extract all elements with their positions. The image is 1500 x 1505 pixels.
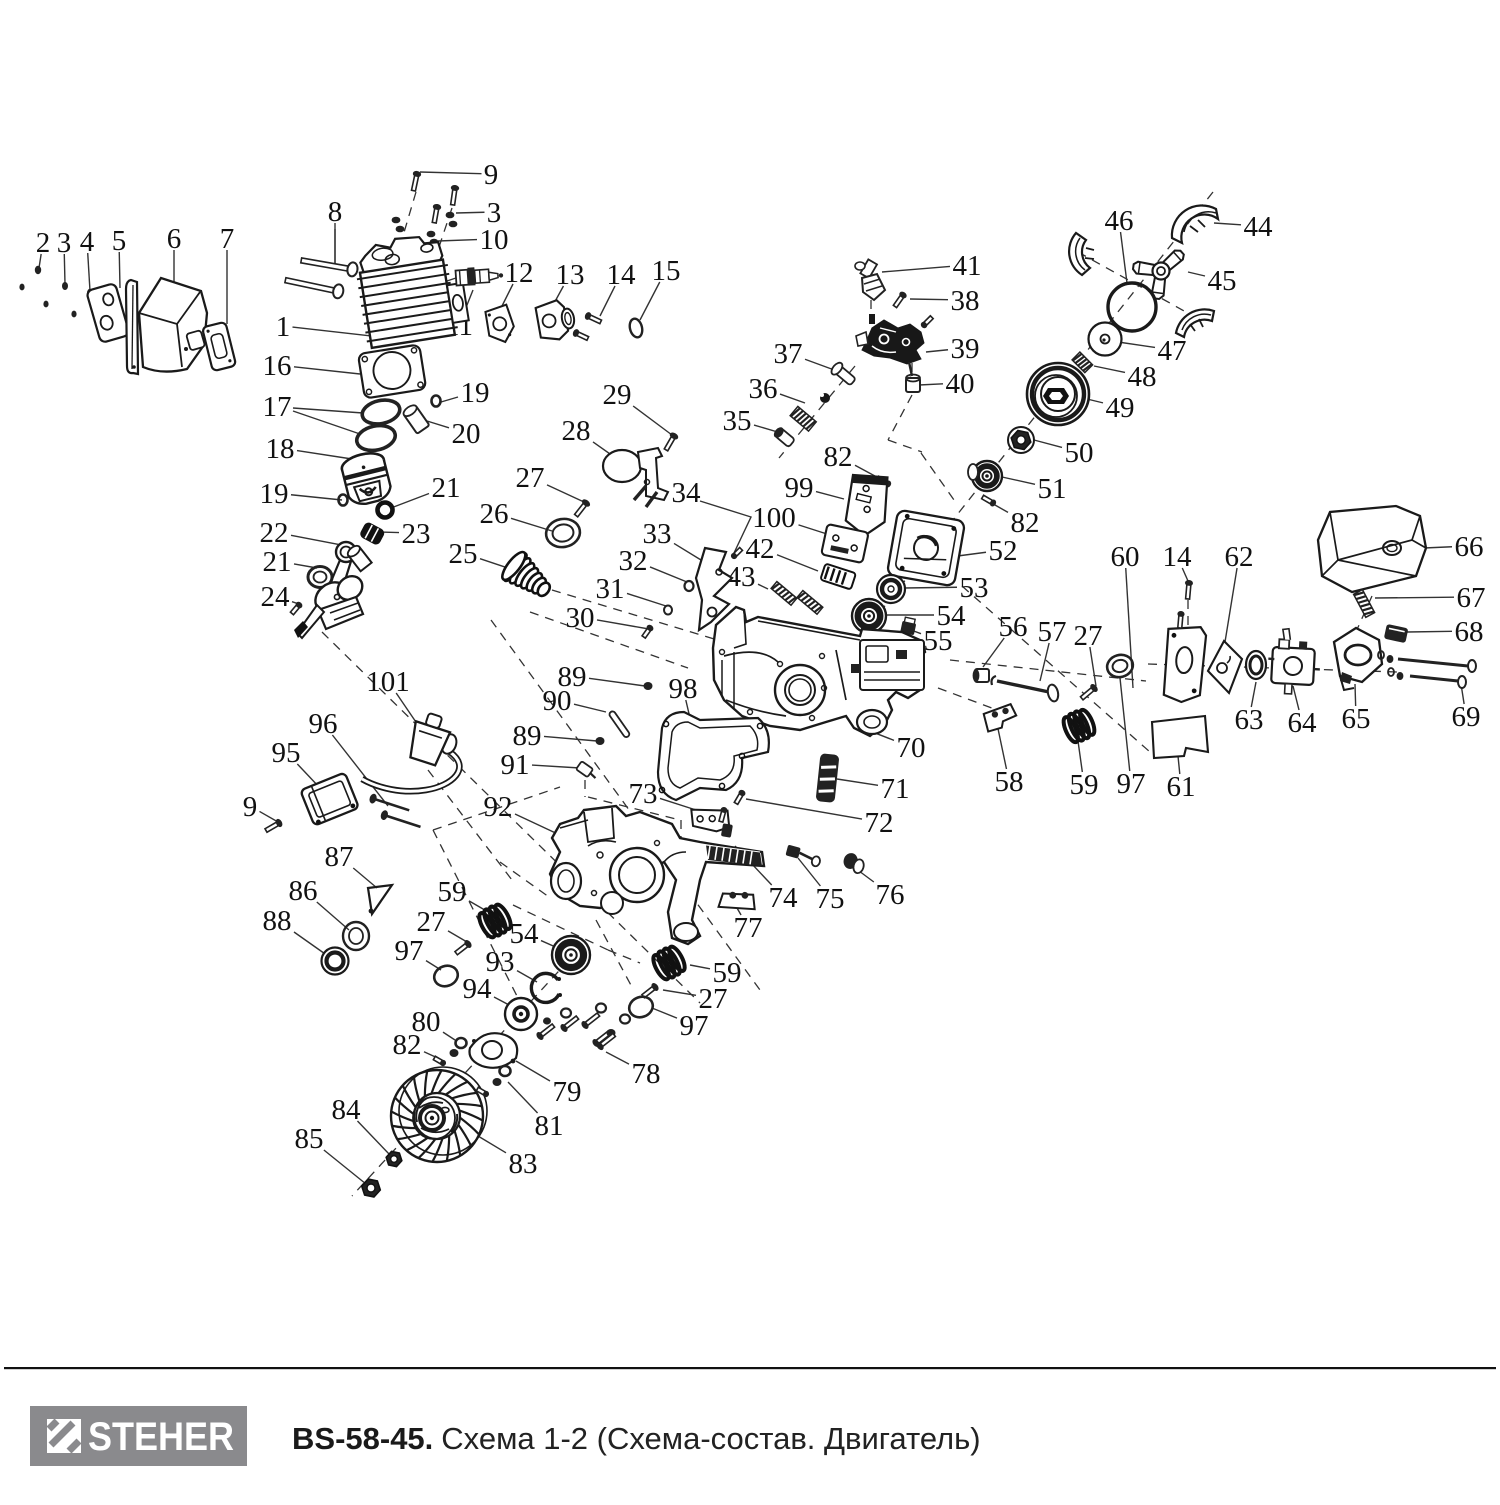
svg-text:58: 58 [995,766,1024,798]
svg-text:6: 6 [167,223,182,255]
svg-text:59: 59 [1070,769,1099,801]
svg-text:13: 13 [556,259,585,291]
svg-text:63: 63 [1235,704,1264,736]
svg-text:98: 98 [669,673,698,705]
svg-text:56: 56 [999,611,1028,643]
svg-text:70: 70 [897,732,926,764]
svg-text:60: 60 [1111,541,1140,573]
svg-text:99: 99 [785,472,814,504]
svg-text:30: 30 [566,602,595,634]
svg-text:67: 67 [1457,582,1486,614]
svg-text:91: 91 [501,749,530,781]
svg-text:73: 73 [629,778,658,810]
svg-text:81: 81 [535,1110,564,1142]
svg-text:27: 27 [417,906,446,938]
svg-text:100: 100 [752,502,796,534]
svg-text:15: 15 [652,255,681,287]
svg-text:19: 19 [461,377,490,409]
svg-text:48: 48 [1128,361,1157,393]
svg-text:4: 4 [80,226,95,258]
svg-text:8: 8 [328,196,343,228]
svg-text:12: 12 [505,257,534,289]
svg-text:79: 79 [553,1076,582,1108]
svg-text:88: 88 [263,905,292,937]
svg-text:86: 86 [289,875,318,907]
svg-text:39: 39 [951,333,980,365]
svg-text:62: 62 [1225,541,1254,573]
svg-text:31: 31 [596,573,625,605]
svg-text:5: 5 [112,225,127,257]
svg-text:52: 52 [989,535,1018,567]
svg-text:76: 76 [876,879,905,911]
svg-text:95: 95 [272,737,301,769]
svg-text:96: 96 [309,708,338,740]
svg-text:34: 34 [672,477,702,509]
svg-text:35: 35 [723,405,752,437]
svg-text:27: 27 [516,462,545,494]
svg-text:55: 55 [924,625,953,657]
svg-text:40: 40 [946,368,975,400]
svg-text:71: 71 [881,773,910,805]
svg-text:74: 74 [769,882,799,914]
svg-text:29: 29 [603,379,632,411]
svg-text:21: 21 [263,546,292,578]
svg-text:61: 61 [1167,771,1196,803]
svg-text:1: 1 [276,311,291,343]
svg-text:77: 77 [734,912,763,944]
svg-text:69: 69 [1452,701,1481,733]
svg-text:84: 84 [332,1094,362,1126]
svg-text:14: 14 [607,259,637,291]
svg-text:14: 14 [1163,541,1193,573]
svg-text:26: 26 [480,498,509,530]
svg-text:82: 82 [393,1029,422,1061]
svg-text:44: 44 [1244,211,1274,243]
svg-text:51: 51 [1038,473,1067,505]
svg-text:83: 83 [509,1148,538,1180]
svg-text:20: 20 [452,418,481,450]
svg-text:97: 97 [680,1010,709,1042]
svg-text:19: 19 [260,478,289,510]
svg-text:94: 94 [463,973,493,1005]
svg-text:41: 41 [953,250,982,282]
svg-text:28: 28 [562,415,591,447]
svg-text:90: 90 [543,685,572,717]
svg-text:BS-58-45.Схема 1-2 (Схема-сост: BS-58-45.Схема 1-2 (Схема-состав. Двигат… [292,1421,981,1456]
svg-text:97: 97 [395,935,424,967]
svg-text:36: 36 [749,373,778,405]
svg-text:2: 2 [36,227,51,259]
svg-text:21: 21 [432,472,461,504]
svg-text:3: 3 [57,227,72,259]
svg-text:72: 72 [865,807,894,839]
svg-text:75: 75 [816,883,845,915]
svg-text:23: 23 [402,518,431,550]
svg-text:101: 101 [366,666,410,698]
svg-text:24: 24 [261,581,291,613]
svg-text:87: 87 [325,841,354,873]
svg-text:9: 9 [243,791,258,823]
svg-text:47: 47 [1158,335,1187,367]
svg-text:49: 49 [1106,392,1135,424]
svg-text:68: 68 [1455,616,1484,648]
svg-text:18: 18 [266,433,295,465]
svg-text:82: 82 [824,441,853,473]
svg-text:64: 64 [1288,707,1318,739]
svg-text:46: 46 [1105,205,1134,237]
svg-text:25: 25 [449,538,478,570]
svg-text:27: 27 [1074,620,1103,652]
svg-text:9: 9 [484,159,499,191]
svg-text:7: 7 [220,223,235,255]
svg-text:45: 45 [1208,265,1237,297]
svg-text:78: 78 [632,1058,661,1090]
svg-text:STEHER: STEHER [88,1415,234,1459]
svg-text:22: 22 [260,517,289,549]
svg-text:38: 38 [951,285,980,317]
svg-text:17: 17 [263,391,292,423]
svg-text:89: 89 [513,720,542,752]
svg-text:50: 50 [1065,437,1094,469]
svg-text:57: 57 [1038,616,1067,648]
svg-text:97: 97 [1117,768,1146,800]
svg-text:66: 66 [1455,531,1484,563]
svg-text:16: 16 [263,350,292,382]
svg-text:85: 85 [295,1123,324,1155]
svg-text:65: 65 [1342,703,1371,735]
svg-text:92: 92 [484,791,513,823]
svg-text:59: 59 [438,876,467,908]
svg-text:37: 37 [774,338,803,370]
svg-text:10: 10 [480,224,509,256]
